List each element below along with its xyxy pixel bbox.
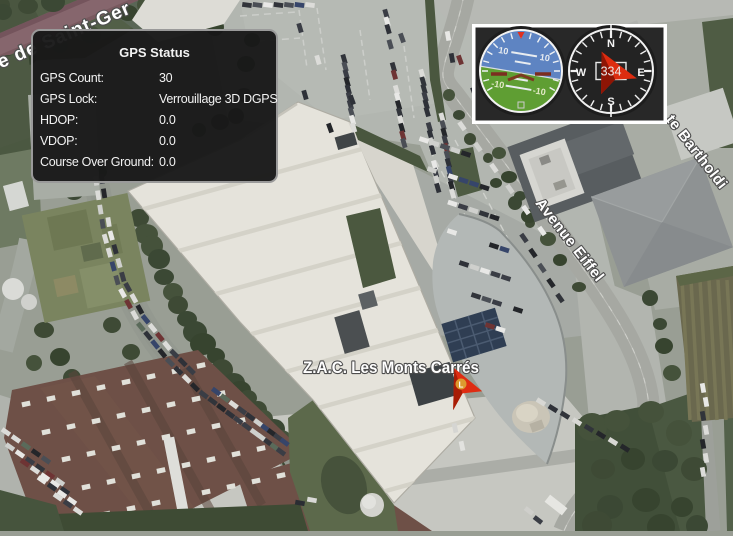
svg-text:W: W bbox=[576, 67, 587, 79]
svg-text:L: L bbox=[459, 381, 464, 390]
svg-text:-10: -10 bbox=[491, 78, 505, 90]
svg-text:334: 334 bbox=[601, 65, 622, 79]
svg-text:N: N bbox=[607, 38, 615, 50]
svg-text:Z.A.C. Les Monts Carrés: Z.A.C. Les Monts Carrés bbox=[303, 358, 479, 377]
svg-text:E: E bbox=[637, 67, 644, 79]
svg-text:10: 10 bbox=[498, 45, 510, 57]
svg-text:10: 10 bbox=[539, 52, 551, 64]
svg-text:-10: -10 bbox=[532, 85, 546, 97]
svg-text:S: S bbox=[607, 96, 614, 108]
